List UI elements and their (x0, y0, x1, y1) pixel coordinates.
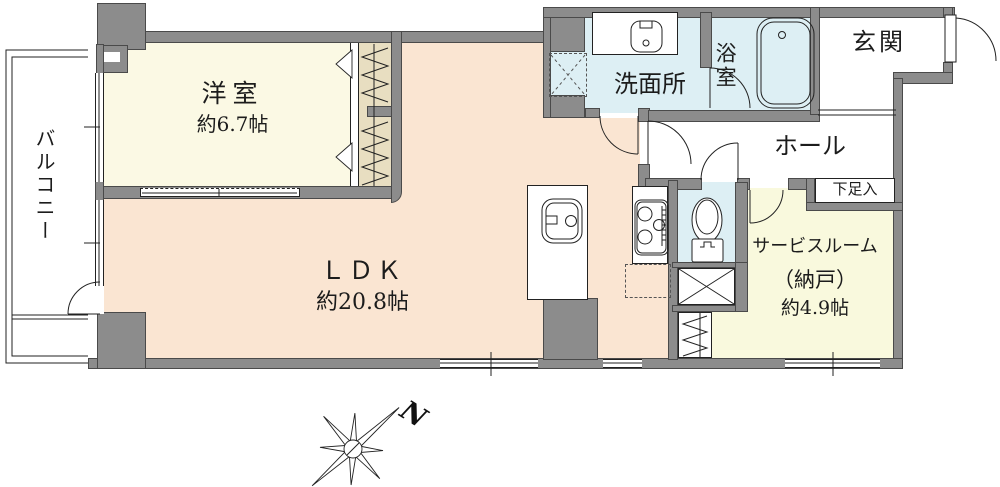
stove-counter (632, 186, 668, 264)
window-ldk-south (440, 359, 538, 368)
shoe-cabinet-label: 下足入 (815, 181, 895, 198)
wall-entrance-right-top (943, 7, 953, 18)
bathroom-label: 浴室 (713, 24, 737, 108)
service-room-label2: （納戸） (730, 268, 900, 292)
service-closet-box (678, 312, 712, 358)
pillar-top-left (97, 3, 146, 50)
wall-top-west (145, 31, 545, 43)
hall-label: ホール (740, 133, 880, 161)
floorplan-canvas: N 洋室 約6.7帖 ＬＤＫ 約20.8帖 洗面所 浴室 玄関 ホール 下足入 … (0, 0, 1000, 487)
pillar-kitchen (543, 298, 598, 360)
wall-shoe-left (806, 178, 815, 204)
service-room-area: 約4.9帖 (730, 298, 900, 320)
wall-bathroom-left (700, 12, 712, 68)
western-room-area: 約6.7帖 (160, 113, 305, 136)
balcony-label: バルコニー (32, 103, 55, 268)
pillar-bottom-left (97, 312, 146, 369)
wall-bathroom-entrance (810, 7, 820, 115)
sliding-door-western-ldk (140, 188, 300, 197)
window-service-south (785, 359, 880, 368)
western-room-label: 洋室 (160, 80, 305, 109)
ldk-label: ＬＤＫ (280, 257, 445, 286)
compass-rose (312, 408, 399, 486)
washroom-label: 洗面所 (585, 71, 715, 99)
washing-machine-space (549, 53, 587, 97)
kitchen-sink-counter (527, 185, 588, 300)
window-ldk-west (95, 200, 104, 286)
wall-washroom-bottom-left (585, 108, 600, 118)
refrigerator-space (625, 264, 671, 298)
service-room-label: サービスルーム (730, 237, 900, 258)
pillar-notch (103, 52, 120, 62)
wall-closet-right (391, 31, 402, 203)
wall-left-stub-top (96, 44, 104, 74)
compass-north-label: N (394, 394, 433, 435)
wall-closet-divider-stub (367, 106, 392, 117)
entry-door (945, 15, 996, 62)
wall-hall-top (648, 110, 820, 122)
entrance-label: 玄関 (820, 29, 938, 57)
floor-entrance-lower (818, 80, 896, 122)
wall-right (893, 78, 903, 369)
wall-shoe-bottom (806, 202, 903, 211)
floor-ldk-mid (397, 118, 640, 190)
vanity-counter (592, 12, 678, 55)
window-western-room (95, 73, 104, 182)
balcony-door-opening (95, 286, 104, 314)
ldk-area: 約20.8帖 (280, 290, 445, 315)
window-kitchen-south (603, 359, 642, 368)
pipe-space-box (678, 268, 735, 305)
wall-left-stub-mid (95, 180, 104, 201)
